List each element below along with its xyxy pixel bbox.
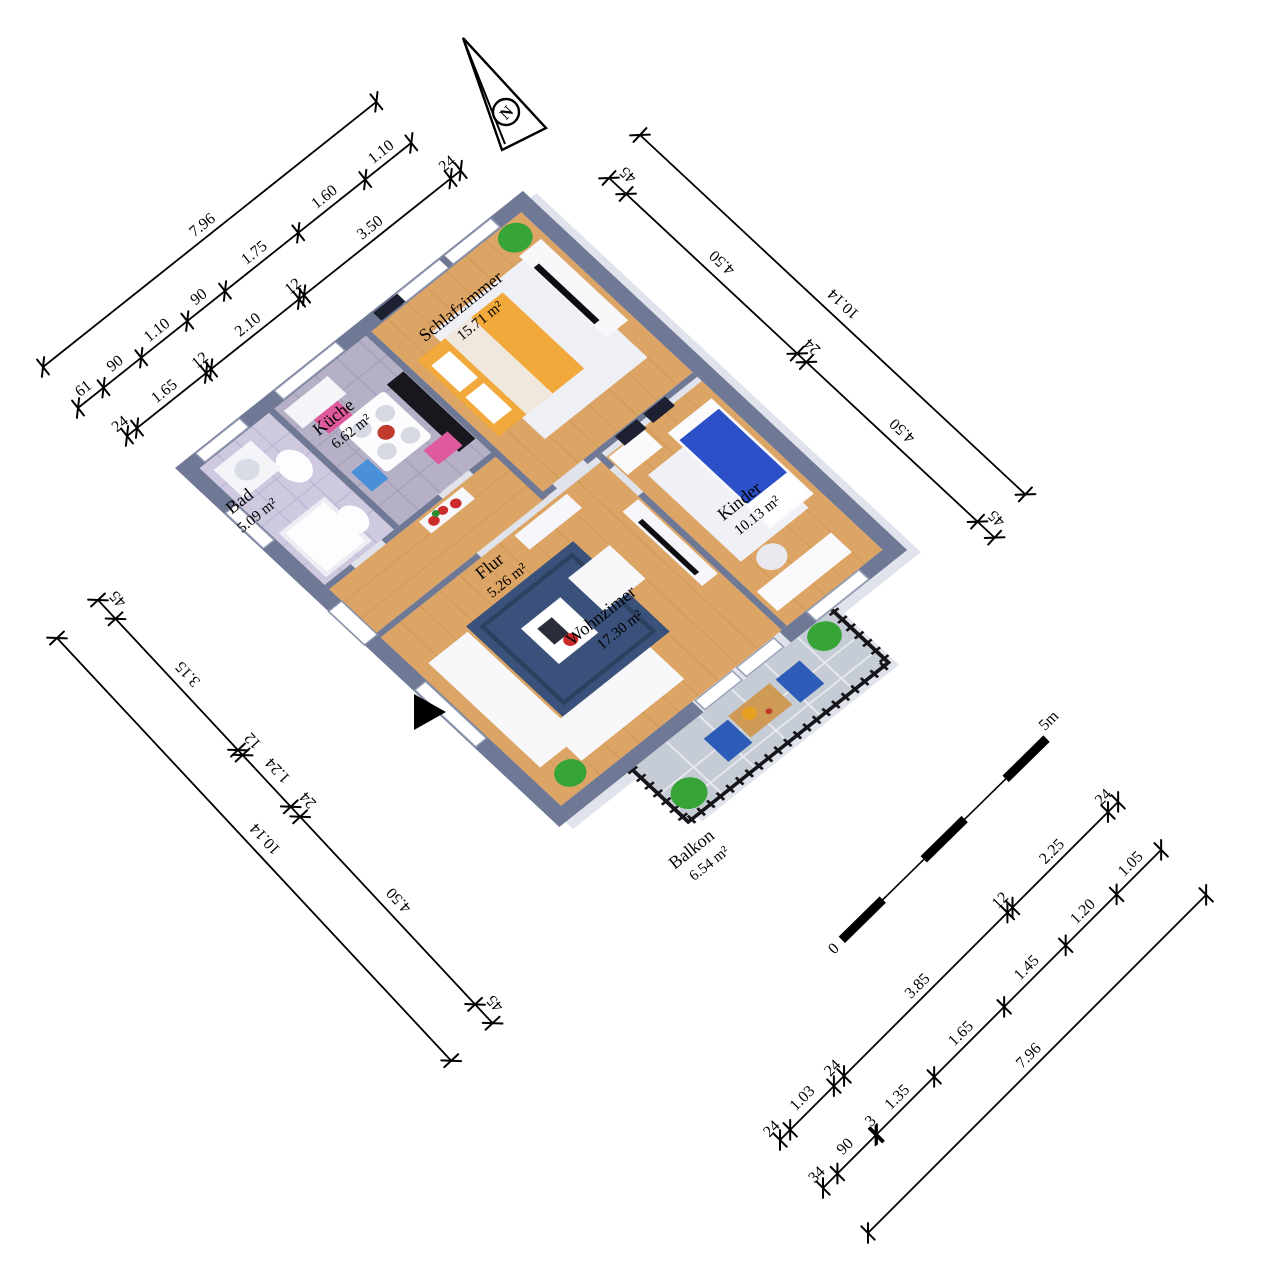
dim-tl-total-label: 7.96 <box>186 210 218 241</box>
dim-label: 24 <box>821 1057 844 1080</box>
scale-bar: 0 5m <box>817 707 1071 958</box>
dim-label: 7.96 <box>1013 1040 1045 1072</box>
scale-bar-seg-2 <box>882 859 924 900</box>
scale-bar-seg-1 <box>839 896 886 943</box>
dim-label: 24 <box>436 152 459 175</box>
dim-label: 1.65 <box>945 1018 977 1050</box>
dim-label: 2.25 <box>1036 836 1068 868</box>
scale-bar-seg-3 <box>921 816 968 863</box>
dim-label: 24 <box>801 335 824 358</box>
scale-bar-seg-4 <box>964 778 1006 819</box>
dim-label: 10.14 <box>825 285 863 322</box>
dim-label: 1.10 <box>365 137 397 168</box>
scale-zero-label: 0 <box>825 940 843 958</box>
floorplan-svg: Schlafzimmer 15.71 m² Küche 6.62 m² Bad … <box>0 0 1280 1280</box>
scale-end-label: 5m <box>1036 707 1063 734</box>
dim-label: 90 <box>834 1135 857 1158</box>
dim-label: 1.20 <box>1067 896 1099 928</box>
dim-label: 3.50 <box>354 212 386 243</box>
dim-label: 1.03 <box>787 1083 819 1115</box>
dim-label: 12 <box>282 275 305 298</box>
dim-br-middle: 34 90 3 1.35 1.65 1.45 1.20 1.05 <box>802 829 1172 1199</box>
dim-label: 1.60 <box>308 182 340 213</box>
dim-label: 34 <box>805 1163 828 1186</box>
north-arrow: N <box>463 38 546 150</box>
floorplan-page: Schlafzimmer 15.71 m² Küche 6.62 m² Bad … <box>0 0 1280 1280</box>
dim-label: 12 <box>189 349 212 372</box>
dim-tl-total: 7.96 <box>25 82 388 379</box>
scale-bar-seg-5 <box>1002 735 1049 782</box>
label-balkon: Balkon 6.54 m² <box>665 823 733 889</box>
dim-label: 1.75 <box>238 238 270 269</box>
dim-label: 12 <box>989 889 1012 912</box>
dim-label: 24 <box>1092 786 1115 809</box>
dim-br-outer: 7.96 <box>849 876 1218 1245</box>
dim-label: 1.05 <box>1115 848 1147 880</box>
dim-label: 1.10 <box>141 315 173 346</box>
dim-label: 1.35 <box>881 1081 913 1113</box>
dim-label: 2.10 <box>232 310 264 341</box>
dim-label: 12 <box>241 729 264 752</box>
dim-label: 1.45 <box>1011 952 1043 984</box>
dim-label: 45 <box>484 992 507 1015</box>
dim-label: 45 <box>106 587 129 610</box>
dim-label: 10.14 <box>247 820 284 858</box>
dim-label: 1.65 <box>148 376 180 407</box>
dim-label: 45 <box>985 507 1008 530</box>
north-arrow-dart <box>463 38 546 150</box>
dim-label: 3.85 <box>902 970 934 1002</box>
dim-label: 45 <box>616 163 639 186</box>
